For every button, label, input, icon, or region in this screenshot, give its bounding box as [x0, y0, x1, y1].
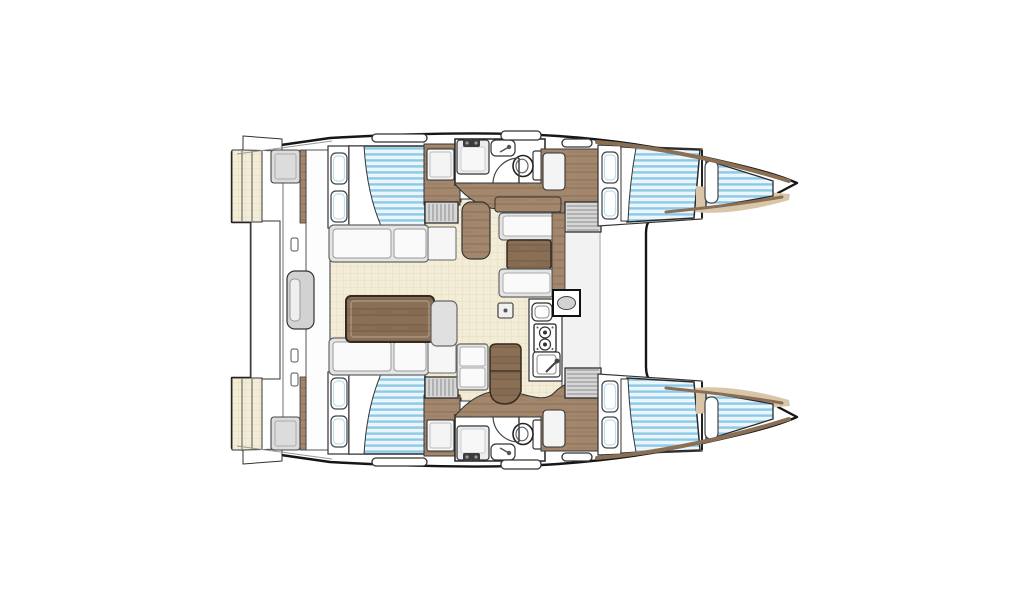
washbasin-faucet-icon	[507, 145, 511, 149]
galley-sink	[533, 352, 560, 377]
washbasin	[491, 140, 515, 156]
corridor-cabinet	[543, 153, 565, 190]
sofa-side-seat	[431, 301, 457, 346]
galley-bench-cushion	[460, 347, 485, 366]
sofa-cushion	[333, 229, 391, 258]
head-compartment	[455, 139, 545, 185]
saloon-sofa-bench	[329, 225, 456, 262]
deck-hatch	[372, 134, 427, 142]
faucet-knob-icon	[465, 141, 468, 144]
mast-step-fixture	[553, 290, 580, 316]
wall-slot	[291, 373, 298, 386]
wall-slot	[291, 349, 298, 362]
catamaran-floor-plan: Catamaran interior floor plan — top-down…	[0, 0, 1024, 600]
dinette-backrest	[495, 197, 561, 212]
dinette-table	[507, 240, 551, 269]
aft-double-cabin	[328, 146, 425, 228]
companionway-steps-aft	[425, 202, 458, 223]
galley-bench-cushion	[460, 368, 485, 387]
saloon-table	[346, 296, 434, 342]
vberth-pillow	[705, 161, 718, 203]
dinette-cushion	[503, 216, 554, 236]
chart-table	[490, 344, 521, 404]
sofa-cushion	[394, 229, 426, 258]
deck-hatch	[501, 131, 541, 140]
floor-plan-canvas: Catamaran interior floor plan — top-down…	[0, 0, 1024, 600]
faucet-knob-icon	[474, 141, 477, 144]
cockpit-sliding-door	[287, 271, 314, 329]
cockpit-locker	[251, 221, 280, 379]
side-deck-trim	[300, 150, 306, 223]
vanity-basin	[461, 147, 485, 171]
companionway-steps-forward	[565, 202, 601, 232]
stove-icon	[534, 324, 556, 352]
deck-hatch	[562, 139, 592, 147]
dinette-side-cabinet	[552, 213, 565, 296]
appliance-knob-icon	[504, 309, 508, 313]
wardrobe	[427, 149, 454, 180]
sink-faucet-icon	[555, 359, 560, 364]
mast-post-seat	[462, 202, 490, 259]
wall-slot	[291, 238, 298, 251]
dinette-cushion	[503, 273, 550, 293]
sofa-end-seat	[428, 227, 456, 260]
